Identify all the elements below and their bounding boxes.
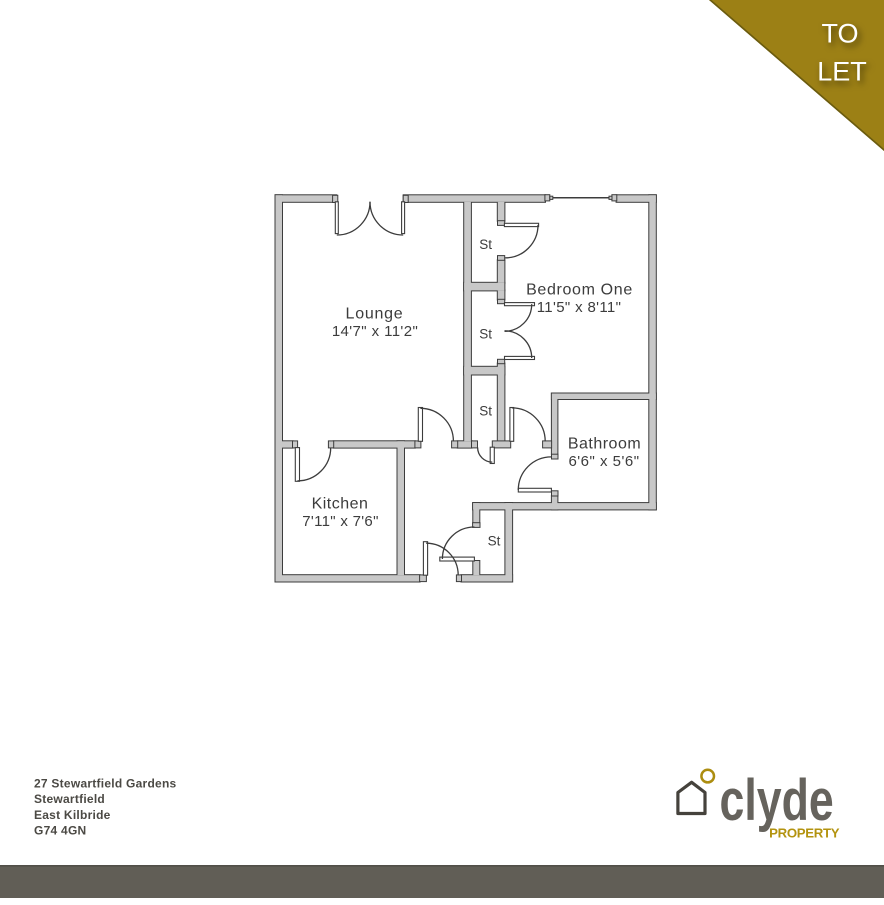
svg-text:7'11" x 7'6": 7'11" x 7'6" <box>302 513 378 530</box>
svg-text:G74 4GN: G74 4GN <box>34 824 86 838</box>
svg-text:Bedroom One: Bedroom One <box>526 281 633 298</box>
svg-text:Stewartfield: Stewartfield <box>34 792 105 806</box>
svg-text:6'6" x 5'6": 6'6" x 5'6" <box>568 453 639 470</box>
svg-text:Bathroom: Bathroom <box>568 435 641 452</box>
svg-text:St: St <box>479 403 492 418</box>
svg-text:St: St <box>488 534 501 549</box>
svg-text:LET: LET <box>817 57 867 87</box>
svg-text:Lounge: Lounge <box>346 305 404 322</box>
svg-text:East Kilbride: East Kilbride <box>34 808 111 822</box>
svg-text:14'7" x 11'2": 14'7" x 11'2" <box>332 323 418 340</box>
svg-text:St: St <box>479 237 492 252</box>
svg-text:clyde: clyde <box>720 767 834 832</box>
svg-text:TO: TO <box>821 18 858 48</box>
svg-text:27 Stewartfield Gardens: 27 Stewartfield Gardens <box>34 776 177 790</box>
svg-text:11'5" x 8'11": 11'5" x 8'11" <box>537 299 622 316</box>
svg-text:Kitchen: Kitchen <box>312 495 369 512</box>
svg-text:St: St <box>479 326 492 341</box>
svg-text:PROPERTY: PROPERTY <box>769 825 840 840</box>
